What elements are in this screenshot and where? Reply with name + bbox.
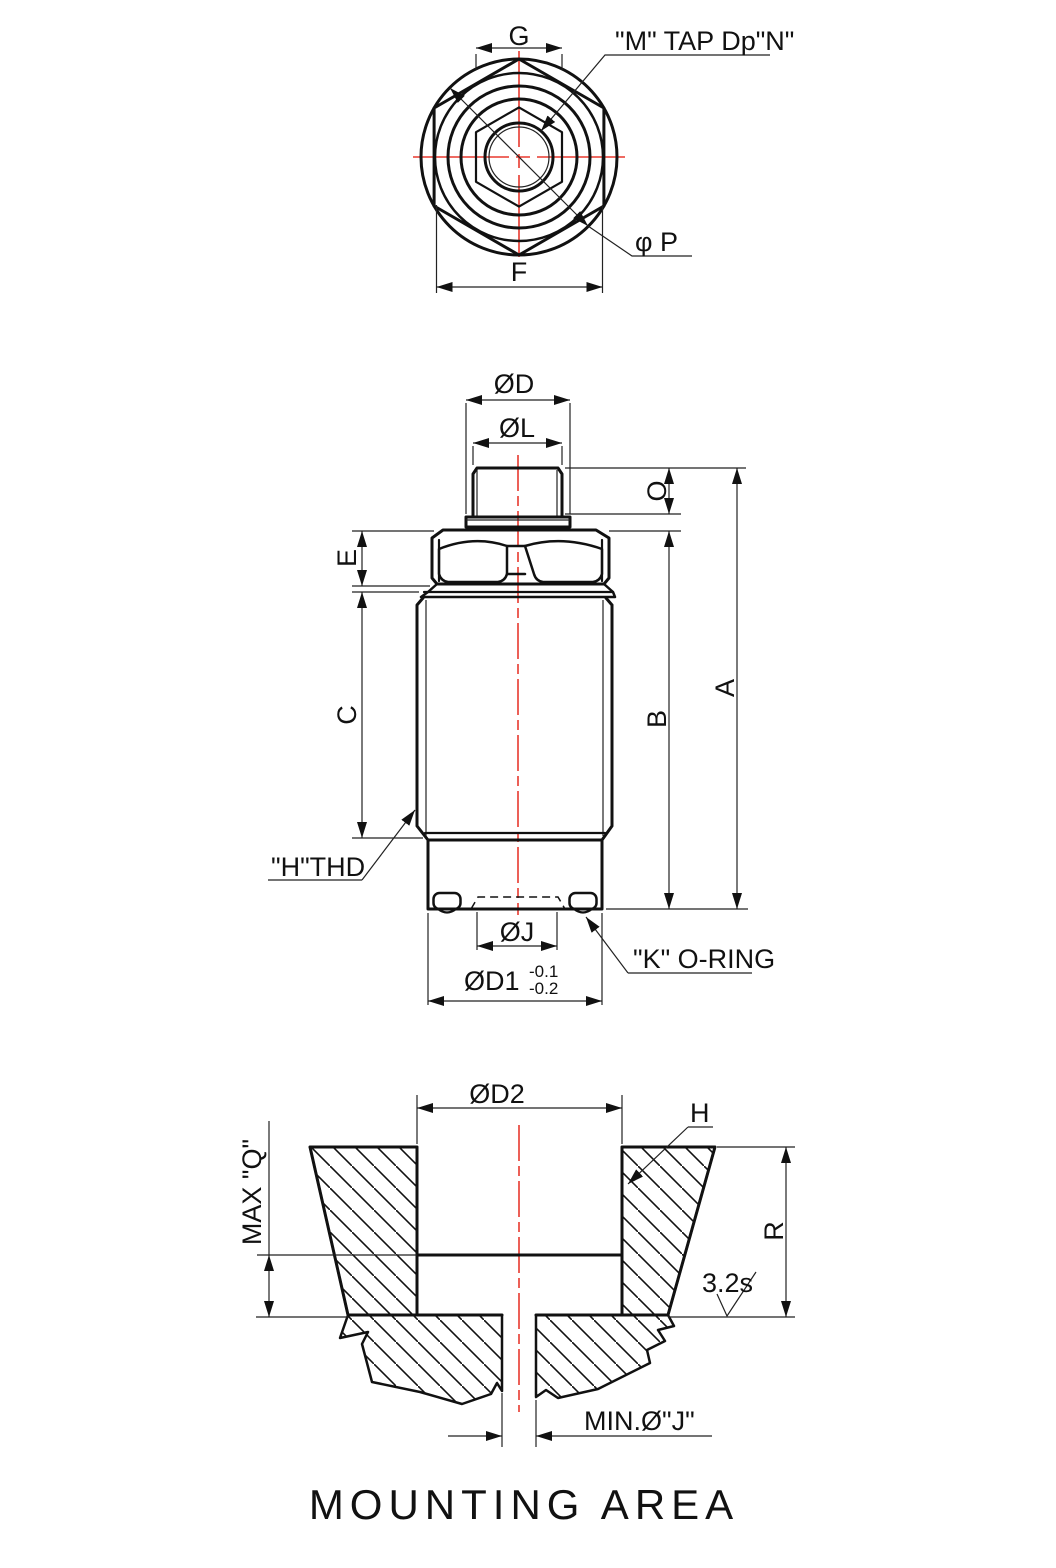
dim-minj-label: MIN.Ø"J" <box>584 1406 695 1436</box>
k-oring-label: "K" O-RING <box>633 944 775 974</box>
top-view: G F "M" TAP Dp"N" φ P <box>413 21 794 293</box>
dim-e-label: E <box>332 549 362 567</box>
dim-d1-tol-lower: -0.2 <box>529 979 558 998</box>
hex-center-edges <box>507 546 525 574</box>
dim-a-label: A <box>710 679 740 697</box>
drawing-canvas: G F "M" TAP Dp"N" φ P <box>0 0 1056 1568</box>
h-thd-label: "H"THD <box>271 852 365 882</box>
dim-c-label: C <box>332 705 362 725</box>
dim-l-label: ØL <box>499 413 535 443</box>
m-tap-label: "M" TAP Dp"N" <box>615 26 794 56</box>
hex-face-left <box>439 541 507 582</box>
lower-left-section <box>340 1315 502 1404</box>
front-view: ØD ØL O E C B A "H"THD "K" O <box>268 369 775 1005</box>
h-label: H <box>690 1098 710 1128</box>
dim-d1-label: ØD1 <box>464 966 520 996</box>
drawing-title: MOUNTING AREA <box>309 1481 739 1528</box>
h-thd-leader <box>362 810 415 880</box>
technical-drawing-page: G F "M" TAP Dp"N" φ P <box>0 0 1056 1568</box>
dim-o-label: O <box>642 480 672 501</box>
dim-j-label: ØJ <box>500 917 535 947</box>
oring-right <box>570 893 597 909</box>
oring-left <box>434 893 461 909</box>
lower-right-section <box>536 1315 674 1398</box>
dim-f-label: F <box>511 257 528 287</box>
hex-outline <box>432 530 609 584</box>
p-label: φ P <box>635 227 678 257</box>
hex-face-right <box>525 541 602 582</box>
pilot-outline <box>428 840 602 909</box>
dim-r-label: R <box>759 1221 789 1241</box>
dim-d2-label: ØD2 <box>469 1079 525 1109</box>
dim-d-label: ØD <box>494 369 535 399</box>
k-oring-leader <box>586 917 628 973</box>
wall-left-section <box>310 1147 417 1315</box>
dim-b-label: B <box>642 710 672 728</box>
dim-q-label: MAX "Q" <box>237 1139 267 1245</box>
mounting-area-view: ØD2 H MAX "Q" R 3.2s MIN.Ø"J" <box>237 1079 795 1447</box>
dim-g-label: G <box>508 21 529 51</box>
surface-finish-label: 3.2s <box>702 1268 753 1298</box>
thread-body-outline <box>417 598 612 840</box>
